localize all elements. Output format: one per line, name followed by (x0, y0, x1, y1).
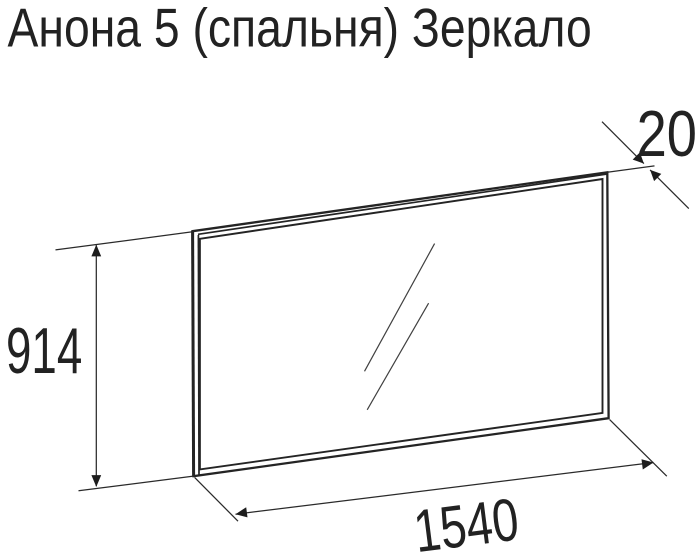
svg-text:914: 914 (6, 314, 82, 387)
svg-text:20: 20 (637, 97, 697, 170)
svg-text:Анона 5 (спальня) Зеркало: Анона 5 (спальня) Зеркало (8, 0, 592, 58)
svg-text:1540: 1540 (410, 486, 522, 553)
